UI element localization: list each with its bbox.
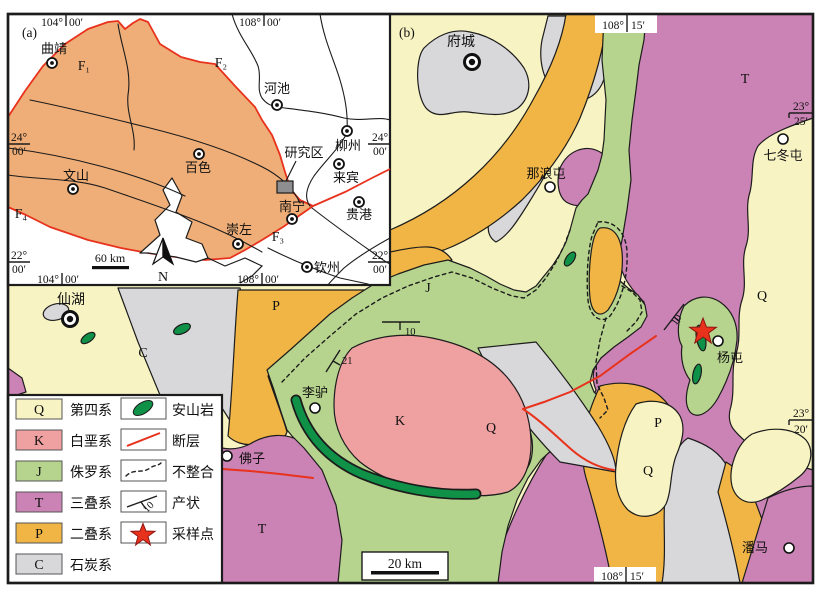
legend-name-c: 石炭系	[70, 557, 112, 573]
lon-top-deg: 108°	[602, 20, 624, 32]
north-label: N	[158, 270, 168, 285]
legend-code-k: K	[34, 434, 44, 449]
legend-name-andesite: 安山岩	[172, 402, 214, 418]
a-lon-e-top-min: 00′	[267, 17, 281, 29]
town-label: 那浪屯	[526, 166, 565, 181]
town-label: 七冬屯	[763, 148, 802, 163]
legend-box-unconformity	[121, 460, 166, 481]
unit-label-Q-b: Q	[643, 464, 653, 479]
scale-a-bar	[92, 266, 129, 269]
scale-b-label: 20 km	[388, 556, 423, 571]
map-canvas: 10 21 10 府城 仙湖	[0, 0, 821, 597]
city-label: 柳州	[335, 138, 361, 153]
lon-top-min: 15′	[631, 20, 645, 32]
unit-label-J: J	[425, 281, 431, 296]
dip-value-2: 21	[342, 356, 353, 367]
town-label: 仙湖	[57, 291, 85, 307]
town-label: 杨屯	[717, 350, 743, 365]
lat-s-deg: 23°	[793, 408, 810, 420]
a-lon-e-bot-min: 00′	[265, 274, 279, 286]
a-lon-e-bot-deg: 108°	[237, 274, 259, 286]
a-lon-e-top-deg: 108°	[239, 17, 261, 29]
a-lat-s-e-deg: 22°	[372, 250, 389, 262]
fault-label-f4: F₄	[15, 206, 28, 221]
legend-code-c: C	[34, 558, 43, 573]
legend-name-t: 三叠系	[70, 495, 112, 511]
inset-scalebar: 60 km	[92, 251, 129, 269]
unit-label-Q-a: Q	[486, 421, 496, 436]
fault-label-f2: F₂	[215, 55, 227, 70]
legend: Q 第四系 K 白垩系 J 侏罗系 T 三叠系 P 二叠系 C 石炭系 安山岩	[8, 395, 222, 583]
dip-value-1: 10	[405, 327, 416, 338]
a-lat-n-e-deg: 24°	[372, 132, 389, 144]
city-label: 曲靖	[41, 41, 67, 56]
panel-a-inset: F₁ F₂ F₃ F₄ 研究区 曲靖 河池 柳州	[8, 14, 390, 286]
a-lat-s-w-deg: 22°	[11, 250, 28, 262]
unit-label-C: C	[138, 346, 147, 361]
town-label: 佛子	[239, 451, 265, 466]
unit-label-P-w: P	[272, 299, 280, 314]
legend-code-t: T	[35, 496, 44, 511]
a-lon-w-bot-deg: 104°	[37, 274, 59, 286]
unit-label-K: K	[395, 414, 405, 429]
a-lat-n-w-min: 00′	[12, 146, 26, 158]
legend-name-fault: 断层	[172, 433, 200, 449]
legend-code-q: Q	[34, 403, 44, 418]
legend-name-sampling: 采样点	[172, 526, 214, 542]
study-area-box	[277, 181, 293, 193]
study-area-label: 研究区	[284, 145, 323, 160]
panel-a-tag: (a)	[22, 25, 37, 40]
unit-label-T-ne: T	[741, 72, 750, 87]
city-label: 钦州	[314, 260, 340, 275]
lon-bottom-min: 15′	[630, 571, 644, 583]
a-lat-s-w-min: 00′	[12, 264, 26, 276]
city-label: 贵港	[346, 207, 372, 222]
unit-label-Q-east: Q	[757, 289, 767, 304]
geological-map-figure: 10 21 10 府城 仙湖	[0, 0, 821, 597]
unit-label-T-sw: T	[258, 522, 267, 537]
legend-code-j: J	[36, 465, 42, 480]
city-label: 文山	[63, 168, 89, 183]
unit-label-P-e: P	[654, 416, 662, 431]
scale-a-label: 60 km	[95, 251, 126, 265]
legend-name-k: 白垩系	[70, 433, 112, 449]
lon-bottom-deg: 108°	[601, 571, 623, 583]
a-lon-w-bot-min: 00′	[65, 274, 79, 286]
city-label: 河池	[264, 81, 290, 96]
legend-name-q: 第四系	[70, 402, 112, 418]
city-qinzhou: 钦州	[302, 260, 340, 275]
panel-b-scalebar: 20 km	[362, 552, 448, 580]
lat-n-deg: 23°	[793, 101, 810, 113]
town-label: 潘马	[742, 540, 768, 555]
legend-name-attitude: 产状	[172, 495, 200, 511]
a-lat-s-e-min: 00′	[373, 264, 387, 276]
city-label: 百色	[185, 160, 211, 175]
a-lat-n-e-min: 00′	[373, 146, 387, 158]
lat-n-min: 25′	[794, 116, 808, 128]
a-lon-w-top-deg: 104°	[41, 17, 63, 29]
town-label: 府城	[447, 33, 475, 49]
city-label: 来宾	[333, 170, 359, 185]
city-label: 南宁	[279, 199, 305, 214]
lat-s-min: 20′	[794, 424, 808, 436]
scale-b-bar	[371, 571, 439, 575]
panel-b-tag: (b)	[399, 25, 415, 40]
fault-label-f3: F₃	[272, 229, 285, 244]
town-label: 李驴	[302, 385, 328, 400]
legend-name-j: 侏罗系	[70, 464, 112, 480]
legend-code-p: P	[35, 527, 43, 542]
legend-name-p: 二叠系	[70, 526, 112, 542]
a-lat-n-w-deg: 24°	[11, 132, 28, 144]
fault-label-f1: F₁	[78, 58, 90, 73]
a-lon-w-top-min: 00′	[69, 17, 83, 29]
legend-name-unconformity: 不整合	[172, 464, 214, 480]
city-label: 崇左	[226, 222, 252, 237]
